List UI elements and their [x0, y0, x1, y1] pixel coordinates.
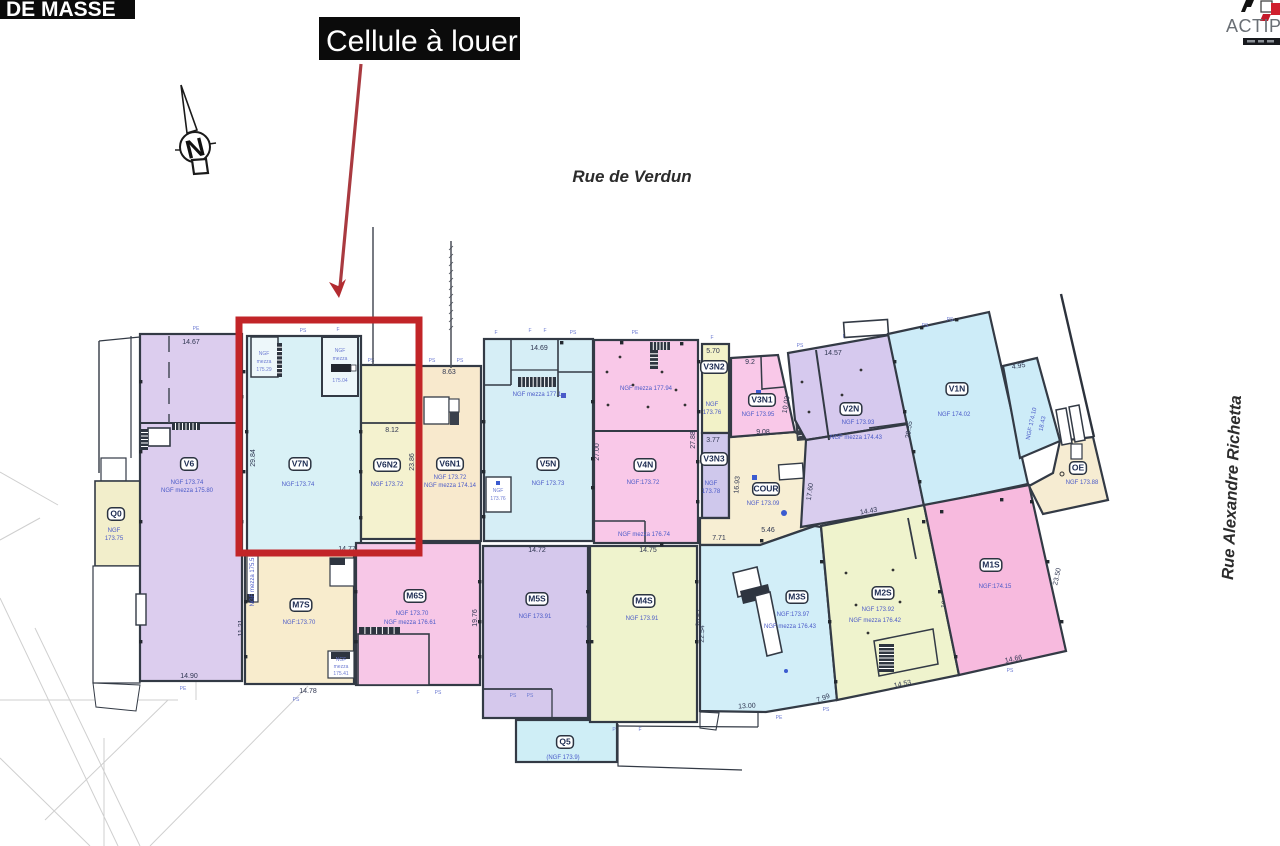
svg-text:175.41: 175.41: [333, 671, 349, 677]
svg-text:NGF 173.92: NGF 173.92: [862, 607, 895, 613]
svg-text:F: F: [336, 327, 339, 333]
svg-text:NGF 173.72: NGF 173.72: [371, 482, 404, 488]
svg-text:PS: PS: [510, 693, 517, 699]
svg-text:NGF mezza 175.5: NGF mezza 175.5: [250, 557, 256, 606]
svg-text:V5N: V5N: [540, 459, 557, 469]
svg-text:M1S: M1S: [982, 560, 1000, 570]
svg-text:27.00: 27.00: [594, 443, 601, 461]
svg-text:9.2: 9.2: [745, 359, 755, 366]
svg-text:V7N: V7N: [292, 459, 309, 469]
svg-text:13.00: 13.00: [738, 703, 756, 711]
svg-text:173.75: 173.75: [105, 536, 124, 542]
svg-text:NGF 173.74: NGF 173.74: [171, 480, 204, 486]
svg-text:NGF 173.95: NGF 173.95: [742, 412, 775, 418]
svg-text:29.84: 29.84: [250, 449, 257, 467]
svg-text:V6N1: V6N1: [439, 459, 461, 469]
svg-text:NGF: NGF: [259, 351, 270, 357]
svg-text:5.46: 5.46: [761, 527, 775, 534]
svg-text:NGF mezza 176.61: NGF mezza 176.61: [384, 620, 437, 626]
svg-text:PS: PS: [368, 358, 375, 364]
svg-text:DE MASSE: DE MASSE: [6, 0, 116, 21]
svg-text:NGF: NGF: [336, 657, 347, 663]
svg-text:14.72: 14.72: [528, 547, 546, 554]
svg-text:14.75: 14.75: [639, 547, 657, 554]
svg-text:NGF: NGF: [335, 348, 346, 354]
svg-text:PS: PS: [293, 697, 300, 703]
svg-text:NGF 173.73: NGF 173.73: [532, 481, 565, 487]
svg-text:173.76: 173.76: [703, 410, 722, 416]
svg-text:M7S: M7S: [292, 600, 310, 610]
svg-text:NGF mezza 176.42: NGF mezza 176.42: [849, 618, 902, 624]
svg-text:NGF: NGF: [108, 528, 121, 534]
svg-text:Cellule à louer: Cellule à louer: [326, 25, 518, 58]
svg-text:PS: PS: [429, 358, 436, 364]
svg-text:V3N3: V3N3: [703, 454, 725, 464]
svg-text:PS: PS: [823, 707, 830, 713]
svg-text:V6: V6: [184, 459, 195, 469]
svg-text:V3N2: V3N2: [703, 362, 725, 372]
svg-text:8.63: 8.63: [442, 369, 456, 376]
svg-text:NGF 173.91: NGF 173.91: [519, 614, 552, 620]
svg-text:3.77: 3.77: [706, 437, 720, 444]
svg-text:PE: PE: [632, 330, 639, 336]
svg-text:NGF 173.72: NGF 173.72: [434, 475, 467, 481]
svg-text:V6N2: V6N2: [376, 460, 398, 470]
svg-text:8.12: 8.12: [385, 427, 399, 434]
svg-text:F: F: [416, 690, 419, 696]
svg-text:9.08: 9.08: [756, 429, 770, 436]
svg-text:14.67: 14.67: [182, 339, 200, 346]
svg-text:NGF mezza 174.14: NGF mezza 174.14: [424, 483, 477, 489]
svg-text:V2N: V2N: [843, 404, 860, 414]
svg-text:22.54: 22.54: [699, 625, 707, 643]
svg-text:PS: PS: [570, 330, 577, 336]
svg-text:NGF mezza 177.1: NGF mezza 177.1: [513, 392, 562, 398]
svg-text:NGF 173.70: NGF 173.70: [396, 611, 429, 617]
svg-text:OE: OE: [1072, 463, 1085, 473]
svg-text:NGF:173.72: NGF:173.72: [627, 480, 660, 486]
svg-text:PS: PS: [797, 343, 804, 349]
svg-text:F: F: [710, 335, 713, 341]
svg-text:NGF mezza 177.94: NGF mezza 177.94: [620, 386, 673, 392]
svg-text:F: F: [638, 727, 641, 733]
svg-text:175.04: 175.04: [332, 378, 348, 384]
svg-text:Q5: Q5: [559, 737, 571, 747]
svg-text:M6S: M6S: [406, 591, 424, 601]
svg-text:PS: PS: [527, 693, 534, 699]
svg-text:PS: PS: [457, 358, 464, 364]
svg-text:11.21: 11.21: [238, 619, 245, 636]
svg-text:V1N: V1N: [949, 384, 966, 394]
svg-text:NGF mezza 174.43: NGF mezza 174.43: [830, 435, 883, 441]
svg-text:14.90: 14.90: [180, 673, 198, 680]
svg-text:M2S: M2S: [874, 588, 892, 598]
svg-text:M3S: M3S: [788, 592, 806, 602]
svg-text:175.29: 175.29: [256, 367, 272, 373]
svg-text:27.88: 27.88: [690, 431, 697, 449]
svg-text:PE: PE: [193, 326, 200, 332]
svg-text:PS: PS: [947, 317, 954, 323]
svg-text:NGF 173.09: NGF 173.09: [747, 501, 780, 507]
svg-text:NGF:173.70: NGF:173.70: [283, 620, 316, 626]
svg-text:(NGF 173.9): (NGF 173.9): [546, 755, 579, 761]
svg-text:NGF mezza 176.43: NGF mezza 176.43: [764, 624, 817, 630]
svg-text:NGF mezza 175.80: NGF mezza 175.80: [161, 488, 214, 494]
svg-text:V4N: V4N: [637, 460, 654, 470]
svg-text:NGF: NGF: [706, 402, 719, 408]
svg-text:PE: PE: [776, 715, 783, 721]
svg-text:PS: PS: [300, 328, 307, 334]
svg-text:NGF 173.91: NGF 173.91: [626, 616, 659, 622]
svg-text:7.71: 7.71: [712, 535, 726, 542]
svg-text:23.86: 23.86: [409, 453, 416, 471]
svg-text:mezza: mezza: [257, 359, 272, 365]
svg-text:NGF: NGF: [705, 481, 718, 487]
svg-text:19.76: 19.76: [472, 609, 479, 627]
svg-text:F: F: [543, 328, 546, 334]
svg-text:PE: PE: [180, 686, 187, 692]
svg-text:COUR: COUR: [753, 484, 778, 494]
svg-text:14.78: 14.78: [299, 688, 317, 695]
svg-text:PS: PS: [435, 690, 442, 696]
svg-text:F: F: [528, 328, 531, 334]
svg-text:14.69: 14.69: [530, 345, 548, 352]
svg-text:173.76: 173.76: [490, 496, 506, 502]
svg-text:14.57: 14.57: [824, 350, 842, 357]
svg-text:173.78: 173.78: [702, 489, 721, 495]
svg-text:NGF: NGF: [493, 488, 504, 494]
svg-text:NGF 173.93: NGF 173.93: [842, 420, 875, 426]
svg-text:V3N1: V3N1: [751, 395, 773, 405]
svg-text:NGF 173.88: NGF 173.88: [1066, 480, 1099, 486]
svg-text:mezza: mezza: [334, 664, 349, 670]
svg-text:Rue de Verdun: Rue de Verdun: [572, 167, 691, 186]
svg-text:NGF:174.15: NGF:174.15: [979, 584, 1012, 590]
svg-text:F: F: [494, 330, 497, 336]
svg-text:M4S: M4S: [635, 596, 653, 606]
svg-text:NGF:173.97: NGF:173.97: [777, 612, 810, 618]
svg-text:Q0: Q0: [110, 509, 122, 519]
svg-text:PS: PS: [1007, 668, 1014, 674]
svg-text:NGF 174.02: NGF 174.02: [938, 412, 971, 418]
svg-text:mezza: mezza: [333, 356, 348, 362]
svg-text:5.70: 5.70: [706, 348, 720, 355]
svg-text:M5S: M5S: [528, 594, 546, 604]
svg-text:NGF mezza 176.74: NGF mezza 176.74: [618, 532, 671, 538]
svg-text:ACTIPO: ACTIPO: [1226, 16, 1280, 36]
svg-text:NGF:173.74: NGF:173.74: [282, 482, 315, 488]
